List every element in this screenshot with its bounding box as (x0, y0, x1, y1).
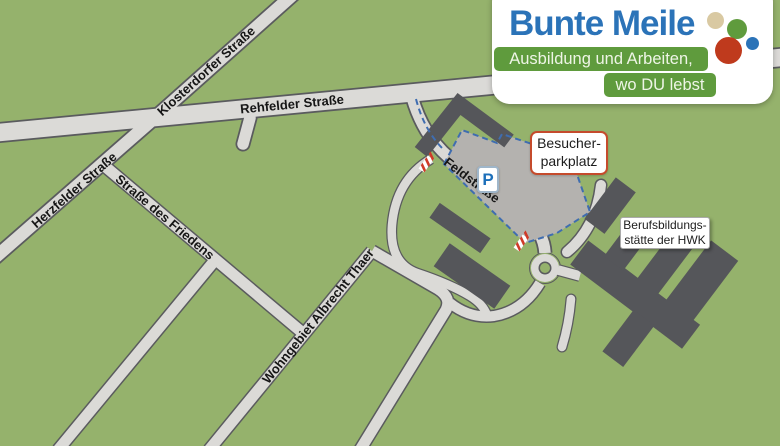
logo-dot-red-icon (715, 37, 742, 64)
visitor-parking-label-line2: parkplatz (532, 153, 606, 171)
logo-dot-green-icon (727, 19, 747, 39)
road-campus-stub (558, 270, 580, 276)
hwk-label: Berufsbildungs- stätte der HWK (620, 217, 710, 249)
hwk-label-line2: stätte der HWK (621, 233, 709, 248)
logo-dot-blue-icon (746, 37, 759, 50)
roundabout (531, 254, 559, 282)
logo-dot-tan-icon (707, 12, 724, 29)
building-west-1 (429, 203, 490, 253)
street-label-friedens: Straße des Friedens (113, 171, 218, 262)
logo-card: Bunte Meile Ausbildung und Arbeiten, wo … (492, 0, 773, 104)
parking-icon: P (477, 166, 499, 193)
road-rehfelder-stub (243, 118, 250, 144)
hwk-label-line1: Berufsbildungs- (621, 218, 709, 233)
street-label-herzfelder: Herzfelder Straße (28, 149, 119, 231)
visitor-parking-label-line1: Besucher- (532, 135, 606, 153)
logo-tagline-2: wo DU lebst (604, 73, 716, 97)
logo-title: Bunte Meile (509, 4, 694, 44)
site-map: Klosterdorfer Straße Rehfelder Straße He… (0, 0, 780, 446)
visitor-parking-label: Besucher- parkplatz (530, 131, 608, 175)
road-side-street (58, 259, 216, 446)
logo-tagline-1: Ausbildung und Arbeiten, (494, 47, 708, 71)
